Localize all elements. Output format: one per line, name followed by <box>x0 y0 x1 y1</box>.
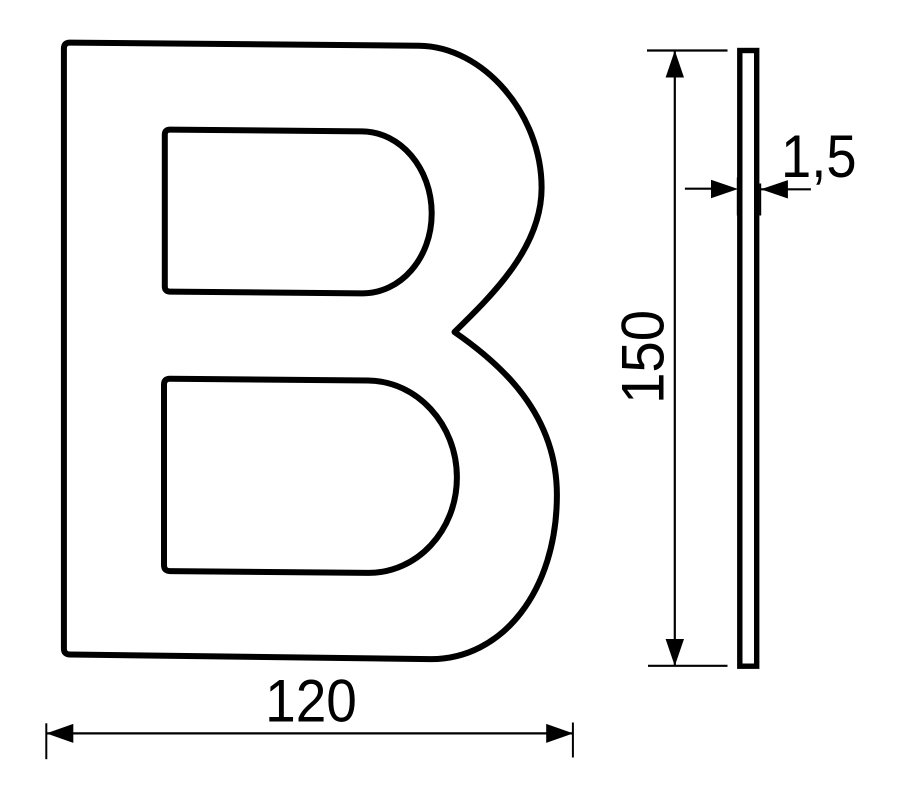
svg-text:1,5: 1,5 <box>781 123 857 190</box>
svg-text:120: 120 <box>265 668 357 735</box>
svg-text:150: 150 <box>609 310 677 404</box>
